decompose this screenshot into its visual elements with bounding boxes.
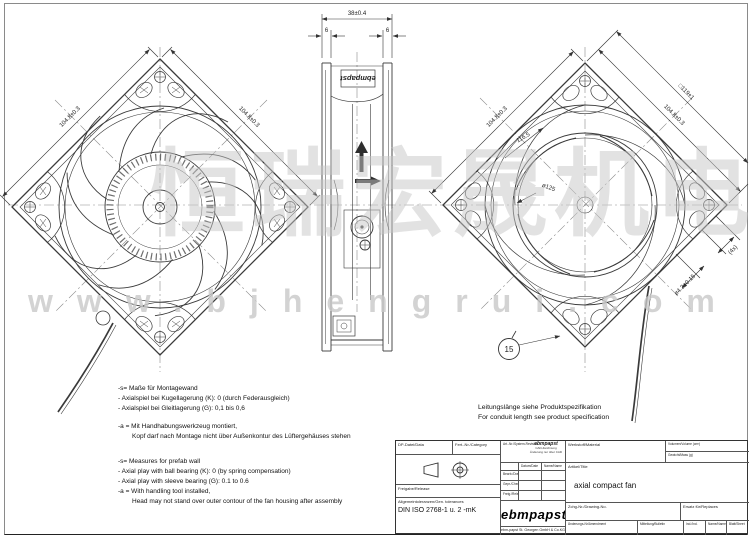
- tb-cell-logo: ebmpapst: [501, 501, 566, 527]
- airflow-arrows-icon: [355, 141, 381, 186]
- tb-cell-change: Änderungs-Nr/Amendment: [566, 521, 638, 535]
- tb-cell-checked-name: [542, 481, 566, 491]
- tb-cell-projection: [396, 455, 501, 485]
- company-name: ebm-papst St. Georgen GmbH & Co.KG: [501, 527, 565, 532]
- dim-rear-frame-label: □119±1: [677, 83, 696, 102]
- note-line: - Axialspiel bei Gleitlagerung (G): 0,1 …: [118, 404, 351, 414]
- tb-cell-bulletin: Mitteilung/Bulletin: [638, 521, 684, 535]
- tb-cell-tolerances: Allgemeintoleranzen/Gen. tolerances DIN …: [396, 498, 501, 535]
- index-label: Ind./Ind.: [684, 521, 705, 526]
- tb-cell-checked: Gepr./Checked: [501, 481, 519, 491]
- balloon-15-label: 15: [505, 345, 514, 354]
- note-line: Kopf darf nach Montage nicht über Außenk…: [118, 432, 351, 442]
- tb-cell-checked-date: [519, 481, 542, 491]
- note-line: -s= Measures for prefab wall: [118, 457, 342, 467]
- dim-side-flange-left-label: 6: [325, 28, 329, 34]
- dim-front-right-label: 104.8±0.3: [237, 106, 261, 130]
- title-block: DP-Datei/Data Fert.-Nr./Category Freigab…: [395, 440, 748, 534]
- row-released-label: Freig./Released: [501, 491, 518, 496]
- dim-side-depth-label: 38±0.4: [348, 11, 367, 17]
- cad-note-2: Änderung nur über CAD: [527, 451, 565, 455]
- projection-symbol-icon: [418, 460, 478, 480]
- dp-file-label: DP-Datei/Data: [396, 441, 452, 447]
- view-rear: [443, 63, 727, 423]
- dim-side: [308, 14, 406, 58]
- drawing-no-label: Zchg-Nr./Drawing-No.: [566, 503, 680, 509]
- note-line: - Axial play with sleeve bearing (G): 0.…: [118, 477, 342, 487]
- tb-cell-replaces: Ersatz für/Replaces: [681, 503, 749, 521]
- name-label: Name/Name: [706, 521, 726, 526]
- impeller-blades: [47, 108, 275, 327]
- note-line: -a = Mit Handhabungswerkzeug montiert,: [118, 422, 351, 432]
- tb-cell-volume: Volumen/Volume (cm³): [666, 441, 749, 452]
- dim-rear-pitch-label: 104.8±0.3: [662, 104, 686, 128]
- tb-cell-date-header: Datum/Date: [519, 463, 542, 471]
- tb-cell-drawn-name: [542, 471, 566, 481]
- tb-cell-mass: Gewicht/Mass (g): [666, 452, 749, 463]
- sysrev-label: Art.-Nr./System-Revision: [501, 441, 527, 446]
- note-line: -s= Maße für Montagewand: [118, 384, 351, 394]
- tb-cell-dp-file: DP-Datei/Data: [396, 441, 453, 455]
- lead-wire-rear: [632, 286, 652, 423]
- notes-english: -s= Measures for prefab wall - Axial pla…: [118, 457, 342, 507]
- dim-rear-hole-label: ø4.3±0.15: [674, 273, 698, 297]
- company-logo: ebmpapst: [501, 507, 565, 522]
- mass-label: Gewicht/Mass (g): [666, 452, 749, 457]
- tb-cell-drawn-date: [519, 471, 542, 481]
- drawing-sheet: 104.8±0.3 104.8±0.3: [0, 0, 750, 540]
- tb-cell-released-date: [519, 491, 542, 501]
- lead-wire-front: [58, 323, 116, 414]
- tb-cell-prod: Fert.-Nr./Category: [453, 441, 501, 455]
- row-checked-label: Gepr./Checked: [501, 481, 518, 486]
- date-header: Datum/Date: [519, 463, 541, 468]
- prod-label: Fert.-Nr./Category: [453, 441, 500, 447]
- tb-cell-name: Name/Name: [706, 521, 727, 535]
- dim-rear-hole-count-label: (4x): [728, 245, 740, 257]
- conduit-note-en: For conduit length see product specifica…: [478, 413, 609, 423]
- tb-cell-sysrev: Art.-Nr./System-Revision ebmpapst CAD-Ze…: [501, 441, 566, 463]
- note-line: - Axial play with ball bearing (K): 0 (b…: [118, 467, 342, 477]
- tb-cell-released-name: [542, 491, 566, 501]
- tb-cell-released: Freig./Released: [501, 491, 519, 501]
- notes-german: -s= Maße für Montagewand - Axialspiel be…: [118, 384, 351, 442]
- dim-rear-circle-label: ø125: [541, 183, 557, 194]
- tb-cell-material: Werkstoff/Material: [566, 441, 666, 463]
- tb-cell-empty: [501, 463, 519, 471]
- tb-cell-drawn: Bearb./Drawn: [501, 471, 519, 481]
- name-header: Name/Name: [542, 463, 565, 468]
- tb-cell-title: Artikel/Title axial compact fan: [566, 463, 749, 503]
- dim-front-left-label: 104.8±0.3: [59, 105, 83, 129]
- tb-cell-release: Freigabe/Release: [396, 485, 501, 498]
- dim-rear: [429, 30, 748, 360]
- drawing-title: axial compact fan: [566, 469, 749, 490]
- bulletin-label: Mitteilung/Bulletin: [638, 521, 683, 526]
- sheet-label: Blatt/Sheet: [727, 521, 749, 526]
- volume-label: Volumen/Volume (cm³): [666, 441, 749, 446]
- dim-rear-inner-label: 116.5: [516, 132, 532, 145]
- change-label: Änderungs-Nr/Amendment: [566, 521, 637, 526]
- dim-side-flange-right-label: 6: [386, 28, 390, 34]
- note-line: Head may not stand over outer contour of…: [118, 497, 342, 507]
- tolerance-value: DIN ISO 2768-1 u. 2 -mK: [396, 504, 500, 514]
- tb-cell-drawing-no: Zchg-Nr./Drawing-No.: [566, 503, 681, 521]
- note-line: -a = With handling tool installed,: [118, 487, 342, 497]
- side-housing-logo: ebmpapst: [340, 74, 376, 83]
- tb-cell-sheet: Blatt/Sheet: [727, 521, 749, 535]
- note-line: - Axialspiel bei Kugellagerung (K): 0 (d…: [118, 394, 351, 404]
- row-drawn-label: Bearb./Drawn: [501, 471, 518, 476]
- tb-cell-name-header: Name/Name: [542, 463, 566, 471]
- conduit-note: Leitungslänge siehe Produktspezifikation…: [478, 403, 609, 423]
- tb-cell-company: ebm-papst St. Georgen GmbH & Co.KG: [501, 527, 566, 535]
- dim-rear-left-label: 104.8±0.3: [486, 105, 510, 129]
- conduit-note-de: Leitungslänge siehe Produktspezifikation: [478, 403, 609, 413]
- replaces-label: Ersatz für/Replaces: [681, 503, 749, 509]
- tb-cell-index: Ind./Ind.: [684, 521, 706, 535]
- material-label: Werkstoff/Material: [566, 441, 665, 447]
- release-label: Freigabe/Release: [396, 485, 500, 491]
